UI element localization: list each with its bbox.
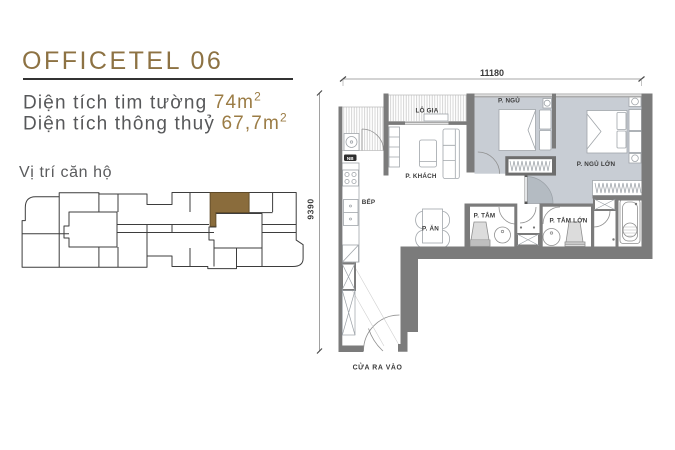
svg-text:P. TẮM LỚN: P. TẮM LỚN	[549, 216, 587, 225]
svg-text:P. KHÁCH: P. KHÁCH	[405, 171, 436, 180]
svg-text:NB: NB	[347, 156, 354, 161]
svg-text:9390: 9390	[306, 198, 316, 219]
svg-text:P. ĂN: P. ĂN	[422, 224, 439, 233]
svg-text:P. NGỦ: P. NGỦ	[498, 96, 520, 105]
svg-text:BẾP: BẾP	[362, 196, 376, 206]
svg-text:P. NGỦ LỚN: P. NGỦ LỚN	[577, 159, 616, 168]
svg-text:CỬA RA VÀO: CỬA RA VÀO	[353, 363, 403, 372]
svg-text:11180: 11180	[480, 68, 504, 78]
svg-text:LÔ GIA: LÔ GIA	[416, 106, 439, 115]
svg-text:P. TẮM: P. TẮM	[474, 210, 496, 219]
